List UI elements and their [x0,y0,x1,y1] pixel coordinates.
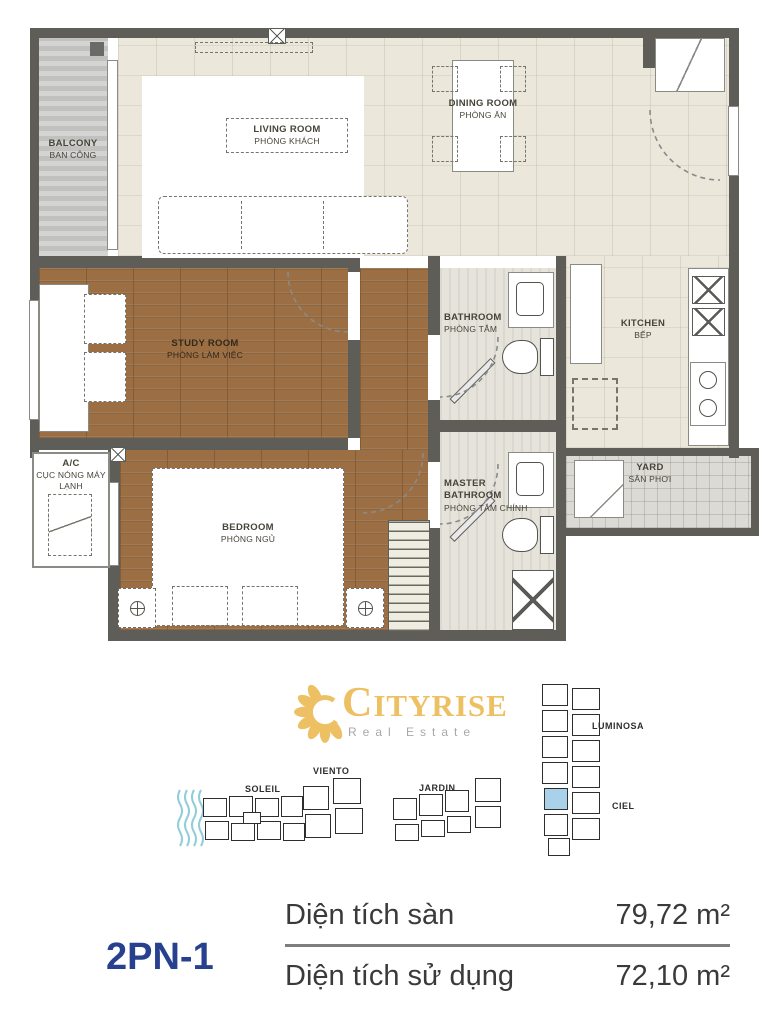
study-desk [39,284,89,432]
wall-study-corridor-b [348,340,360,438]
floorplan-page: LIVING ROOM PHÒNG KHÁCH DINING ROOM PHÒN… [0,0,765,1024]
wall-bath-masterbath [428,420,566,432]
building-luminosa-ciel [542,684,602,856]
wall-yard-right [751,448,759,536]
master-toilet-tank [540,516,554,554]
entrance-door-arc [650,110,722,182]
lamp-icon [130,601,145,616]
kitchen-label: KITCHEN BẾP [606,318,680,341]
yard-label: YARD SÂN PHƠI [600,462,700,485]
bed-pillow [242,586,298,626]
nightstand [118,588,156,628]
dining-room-label: DINING ROOM PHÒNG ĂN [431,98,535,121]
bedroom-window [109,482,119,566]
water-wave-icon [176,788,204,846]
floor-plan: LIVING ROOM PHÒNG KHÁCH DINING ROOM PHÒN… [0,0,765,660]
sofa [158,196,408,254]
study-window [29,300,39,420]
study-chair [84,294,126,344]
kitchen-sink-icon [692,276,725,304]
study-door-arc [288,272,350,334]
spec-label: Diện tích sử dụng [285,960,514,993]
building-label-soleil: SOLEIL [245,784,281,794]
shaft-x-icon [512,570,554,630]
kitchen-cabinet [570,264,602,364]
living-room-label: LIVING ROOM PHÒNG KHÁCH [226,118,348,153]
dining-chair [500,136,526,162]
wardrobe [388,520,430,632]
bedroom-door-arc [363,453,425,515]
kitchen-sink-icon [692,308,725,336]
tv-cabinet [195,42,313,53]
wall-entry-stub [643,38,655,68]
fridge-space [572,378,618,430]
wall-junction-icon [110,447,126,462]
building-label-ciel: CIEL [612,801,635,811]
spec-value: 72,10 m² [616,960,730,993]
master-toilet [502,518,538,552]
entry-closet [655,38,725,92]
spec-value: 79,72 m² [616,899,730,932]
sofa-divider [323,201,325,249]
highlighted-unit [544,788,568,810]
wall-bottom [110,630,566,641]
bathroom-sink-basin [516,282,544,316]
burner-icon [699,399,717,417]
dining-chair [432,136,458,162]
bathroom-door-arc [440,337,500,399]
balcony-condenser-icon [90,42,104,56]
bed-pillow [172,586,228,626]
spec-row-floor-area: Diện tích sàn 79,72 m² [285,886,730,944]
bedroom-label: BEDROOM PHÒNG NGỦ [190,522,306,545]
unit-code: 2PN-1 [106,936,214,979]
ac-label: A/C CỤC NÓNG MÁY LẠNH [36,458,106,492]
study-room-label: STUDY ROOM PHÒNG LÀM VIỆC [145,338,265,361]
study-chair [84,352,126,402]
ac-unit-box [48,494,92,556]
balcony-sliding-door [107,60,118,250]
wall-corridor-bath-a [428,256,440,335]
wall-yard-top [566,448,759,456]
nightstand [346,588,384,628]
lamp-icon [358,601,373,616]
toilet [502,340,538,374]
site-plan: SOLEIL VIENTO JARDIN [0,660,765,870]
spec-row-usable-area: Diện tích sử dụng 72,10 m² [285,947,730,1005]
master-bathroom-label: MASTER BATHROOM PHÒNG TẮM CHÍNH [444,478,528,514]
wall-top [30,28,739,38]
wall-study-bedroom [30,438,348,450]
bathroom-label: BATHROOM PHÒNG TẮM [444,312,530,335]
building-viento [303,778,365,840]
dining-chair [432,66,458,92]
building-label-jardin: JARDIN [419,783,456,793]
burner-icon [699,371,717,389]
wall-yard-bottom [566,528,759,536]
stove [690,362,726,426]
wall-study-corridor-a [348,256,360,272]
building-label-luminosa: LUMINOSA [592,721,644,731]
balcony-label: BALCONY BAN CÔNG [38,138,108,161]
spec-label: Diện tích sàn [285,899,454,932]
building-label-viento: VIENTO [313,766,349,776]
entrance-door-leaf [728,106,739,176]
wall-bath-kitchen [556,256,566,641]
spec-table: Diện tích sàn 79,72 m² Diện tích sử dụng… [285,886,730,1005]
sofa-divider [241,201,243,249]
dining-chair [500,66,526,92]
toilet-tank [540,338,554,376]
wall-right [729,28,739,458]
